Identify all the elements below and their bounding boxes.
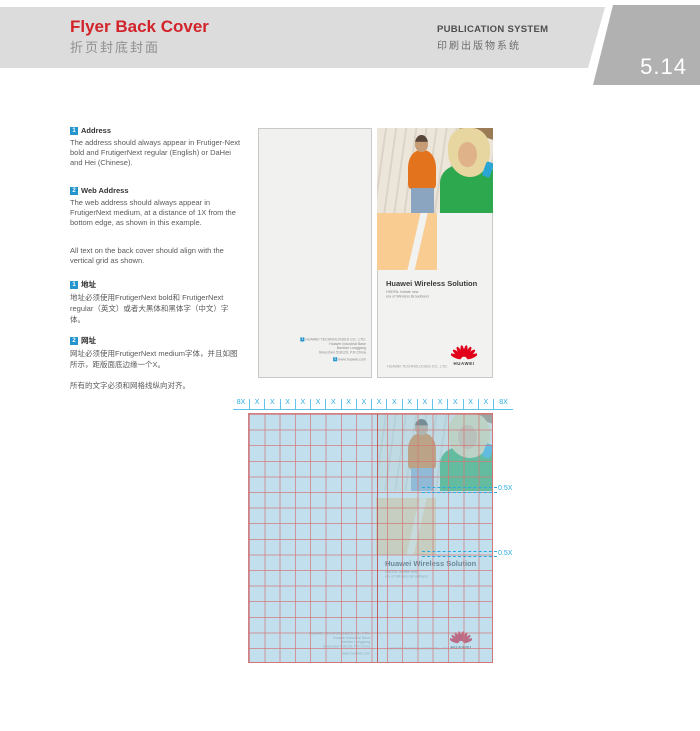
web-address-line: 2 www.huawei.com [300, 357, 366, 361]
ruler-unit-label: X [249, 399, 264, 409]
ruler-unit-label: X [295, 399, 310, 409]
grid-lines [248, 413, 493, 663]
page-number-corner: 5.14 [590, 5, 700, 85]
orange-accent-shape [377, 213, 437, 270]
page-number: 5.14 [640, 54, 687, 80]
item-body: 地址必须使用FrutigerNext bold和 FrutigerNext re… [70, 292, 242, 325]
dashed-line [422, 492, 497, 493]
item-number-badge: 1 [70, 127, 78, 135]
ruler-end-label-right: 8X [493, 399, 513, 409]
sidebar-item: 1 地址 地址必须使用FrutigerNext bold和 FrutigerNe… [70, 280, 242, 325]
ruler-unit-label: X [341, 399, 356, 409]
sidebar-items-en: 1 Address The address should always appe… [70, 126, 242, 228]
flyer-front-panel: Huawei Wireless Solution HSDPA: Initiate… [377, 128, 493, 378]
dashed-line [422, 487, 497, 488]
item-number-badge: 2 [70, 337, 78, 345]
ruler-unit-label: X [356, 399, 371, 409]
flyer-back-panel: 1 HUAWEI TECHNOLOGIES CO., LTD. Huawei I… [258, 128, 372, 378]
address-lines: Huawei Industrial BaseBantian LonggangSh… [300, 341, 366, 354]
address-company: HUAWEI TECHNOLOGIES CO., LTD. [305, 337, 366, 341]
system-name-cn: 印刷出版物系统 [437, 37, 521, 52]
huawei-logo: HUAWEI [445, 344, 483, 370]
ruler-unit-label: X [325, 399, 340, 409]
sidebar-item: 2 网址 网址必须使用FrutigerNext medium字体，并且如图所示，… [70, 336, 242, 370]
sidebar-item-title: 2 Web Address [70, 186, 242, 196]
sidebar-item: 2 Web Address The web address should alw… [70, 186, 242, 228]
photo-man-jeans [411, 188, 434, 214]
item-body: The web address should always appear in … [70, 198, 242, 228]
huawei-logo-icon [451, 344, 477, 360]
measure-line-1 [422, 487, 497, 493]
ruler-unit-label: X [432, 399, 447, 409]
ruler-units: XXXXXXXXXXXXXXXX [249, 399, 493, 409]
ruler-unit-label: X [310, 399, 325, 409]
item-title-text: Web Address [81, 186, 129, 196]
web-marker-badge: 2 [333, 357, 337, 361]
cover-photo [377, 128, 493, 213]
logo-wordmark: HUAWEI [454, 361, 475, 366]
measure-label-2: 0.5X [498, 550, 512, 557]
item-body: 网址必须使用FrutigerNext medium字体，并且如图所示，距版面底边… [70, 348, 242, 370]
ruler-unit-label: X [463, 399, 478, 409]
diagonal-slash-shape [406, 213, 429, 270]
ruler-unit-label: X [386, 399, 401, 409]
ruler-unit-label: X [371, 399, 386, 409]
flyer-subtitle: HSDPA: Initiate new era of Wireless Broa… [386, 290, 429, 299]
sidebar: 1 Address The address should always appe… [70, 126, 242, 405]
measure-label-1: 0.5X [498, 485, 512, 492]
page-title-cn: 折页封底封面 [70, 37, 160, 56]
web-address: www.huawei.com [338, 357, 366, 361]
address-marker-badge: 1 [300, 337, 304, 341]
sidebar-item: 1 Address The address should always appe… [70, 126, 242, 168]
company-line: HUAWEI TECHNOLOGIES CO., LTD. [387, 364, 448, 368]
flyer-headline: Huawei Wireless Solution [386, 279, 477, 288]
system-name-en: PUBLICATION SYSTEM [437, 24, 548, 35]
ruler-unit-label: X [402, 399, 417, 409]
sidebar-item-title: 1 Address [70, 126, 242, 136]
ruler-unit-label: X [264, 399, 279, 409]
page-title: Flyer Back Cover [70, 17, 209, 37]
ruler-end-label-left: 8X [233, 399, 249, 409]
address-line: Shenzhen 518129, P.R.China [300, 350, 366, 354]
dashed-line [422, 551, 497, 552]
sidebar-note-en: All text on the back cover should align … [70, 246, 242, 266]
dashed-line [422, 556, 497, 557]
address-line-1: 1 HUAWEI TECHNOLOGIES CO., LTD. [300, 337, 366, 341]
measure-line-2 [422, 551, 497, 557]
photo-man-head [415, 135, 428, 152]
photo-man-jacket [408, 150, 436, 189]
ruler-unit-label: X [417, 399, 432, 409]
photo-woman-face [458, 142, 477, 168]
sidebar-items-cn: 1 地址 地址必须使用FrutigerNext bold和 FrutigerNe… [70, 280, 242, 370]
item-number-badge: 2 [70, 187, 78, 195]
address-block: 1 HUAWEI TECHNOLOGIES CO., LTD. Huawei I… [300, 337, 366, 361]
address-line: Huawei Industrial Base [300, 341, 366, 345]
page: Flyer Back Cover 折页封底封面 PUBLICATION SYST… [0, 0, 700, 731]
address-line: Bantian Longgang [300, 345, 366, 349]
item-body: The address should always appear in Frut… [70, 138, 242, 168]
ruler-unit-label: X [447, 399, 462, 409]
fold-line [377, 414, 378, 662]
sidebar-note-cn: 所有的文字必须和网格线纵向对齐。 [70, 381, 242, 391]
item-title-text: Address [81, 126, 111, 136]
ruler-unit-label: X [478, 399, 493, 409]
sidebar-item-title: 2 网址 [70, 336, 242, 346]
sidebar-item-title: 1 地址 [70, 280, 242, 290]
grid-diagram: Huawei Wireless Solution HSDPA: Initiate… [248, 413, 493, 663]
item-title-text: 网址 [81, 336, 96, 346]
item-number-badge: 1 [70, 281, 78, 289]
ruler-unit-label: X [280, 399, 295, 409]
item-title-text: 地址 [81, 280, 96, 290]
flyer-subtitle-line2: era of Wireless Broadband [386, 294, 429, 298]
grid-ruler: 8X XXXXXXXXXXXXXXXX 8X [233, 399, 513, 410]
